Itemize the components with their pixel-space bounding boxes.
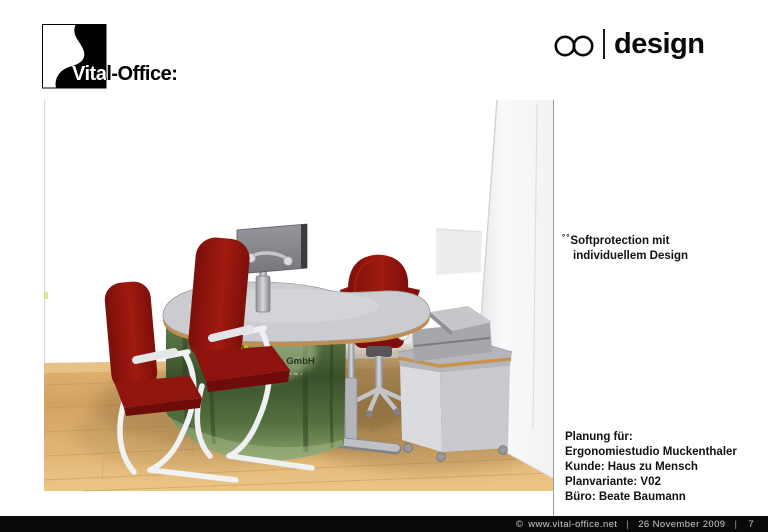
footer-separator-2: | bbox=[734, 519, 737, 530]
wordmark-divider bbox=[603, 29, 605, 59]
slide-page: Vital-Office: Vital-Office: design bbox=[0, 0, 768, 532]
design-wordmark: design bbox=[614, 30, 704, 59]
vital-office-logo-graphic: Vital-Office: Vital-Office: bbox=[42, 22, 292, 92]
copyright-symbol: © bbox=[516, 519, 523, 530]
image-left-border bbox=[44, 100, 45, 390]
annotation-softprotection: °°Softprotection mit individuellem Desig… bbox=[562, 231, 688, 263]
plan-info-customer: Kunde: Haus zu Mensch bbox=[565, 460, 737, 475]
vital-office-logo: Vital-Office: Vital-Office: bbox=[42, 22, 292, 92]
design-brand: design bbox=[552, 22, 704, 66]
plan-info-heading: Planung für: bbox=[565, 430, 737, 445]
footer-bar: © www.vital-office.net | 26 November 200… bbox=[0, 516, 768, 532]
footer-website: www.vital-office.net bbox=[528, 519, 617, 530]
plan-info-studio: Ergonomiestudio Muckenthaler bbox=[565, 445, 737, 460]
plan-info: Planung für: Ergonomiestudio Muckenthale… bbox=[565, 430, 737, 505]
infinity-icon bbox=[552, 22, 596, 66]
plan-info-variant: Planvariante: V02 bbox=[565, 475, 737, 490]
plan-info-office: Büro: Beate Baumann bbox=[565, 490, 737, 505]
annotation-line2: individuellem Design bbox=[562, 249, 688, 264]
column-separator-line bbox=[553, 100, 554, 516]
wall-band bbox=[436, 228, 482, 275]
footer-separator-1: | bbox=[626, 519, 629, 530]
footer-date: 26 November 2009 bbox=[638, 519, 725, 530]
wall-outlet-marker bbox=[44, 292, 48, 299]
office-rendering: Haus zu Mensch GmbH bbox=[44, 100, 554, 494]
page-number: 7 bbox=[748, 519, 754, 530]
annotation-line1: Softprotection mit bbox=[570, 235, 669, 247]
